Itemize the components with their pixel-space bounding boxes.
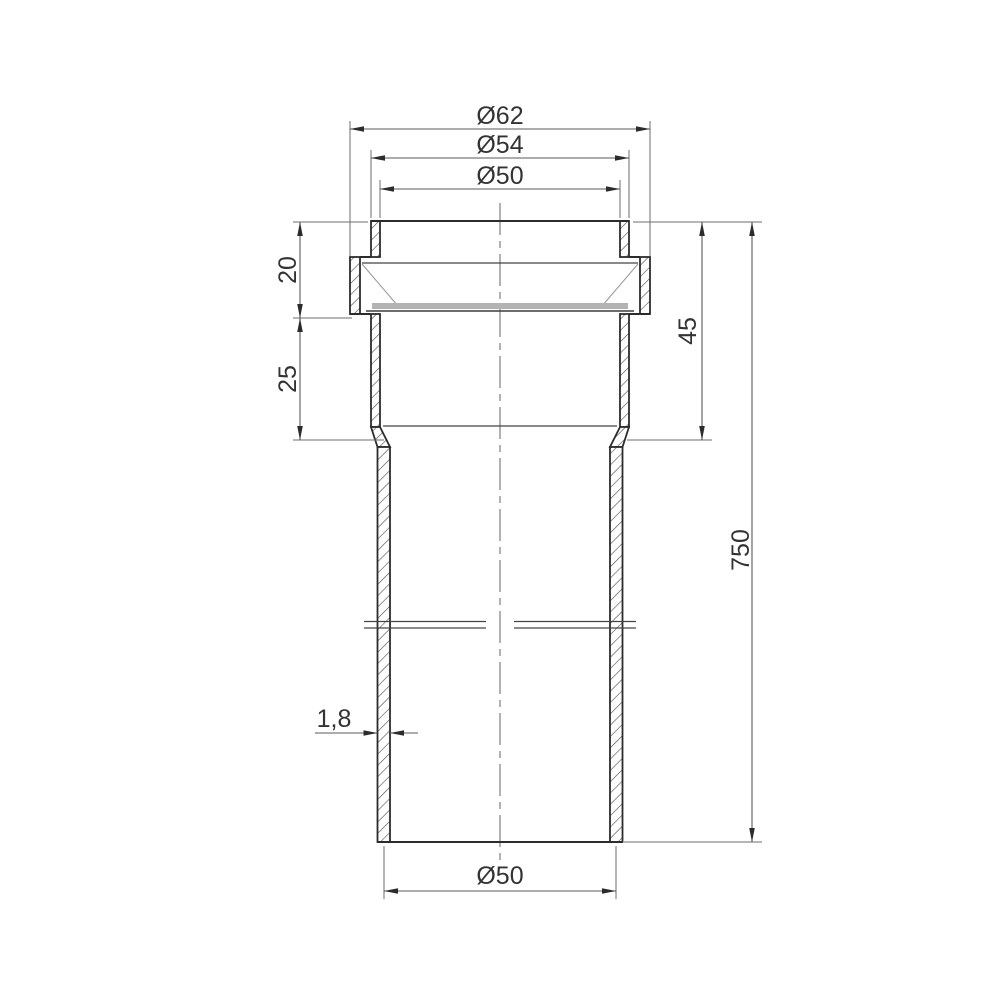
- pipe-section-drawing: Ø62 Ø54 Ø50 20 25 45 750: [0, 0, 1000, 1000]
- dimension-pipe-outer-diameter: Ø50: [384, 862, 616, 894]
- dimension-socket-outer-diameter: Ø54: [371, 131, 629, 161]
- dimension-socket-inner-diameter: Ø50: [380, 162, 620, 192]
- label-groove-outer-diameter: Ø62: [476, 102, 523, 130]
- label-socket-outer-diameter: Ø54: [476, 131, 523, 159]
- technical-drawing-canvas: Ø62 Ø54 Ø50 20 25 45 750: [0, 0, 1000, 1000]
- label-wall-thickness: 1,8: [317, 705, 352, 733]
- dimension-socket-lower-height: 25: [274, 318, 303, 440]
- label-groove-height: 20: [274, 256, 302, 284]
- dimension-socket-depth: 45: [674, 222, 705, 440]
- label-pipe-outer-diameter: Ø50: [476, 862, 523, 890]
- label-socket-depth: 45: [674, 317, 702, 345]
- label-socket-lower-height: 25: [274, 365, 302, 393]
- label-overall-length: 750: [727, 529, 755, 571]
- dimension-groove-outer-diameter: Ø62: [350, 102, 650, 132]
- extension-lines: [293, 121, 762, 899]
- dimension-wall-thickness: 1,8: [315, 705, 418, 736]
- label-socket-inner-diameter: Ø50: [476, 162, 523, 190]
- dimension-overall-length: 750: [727, 222, 755, 842]
